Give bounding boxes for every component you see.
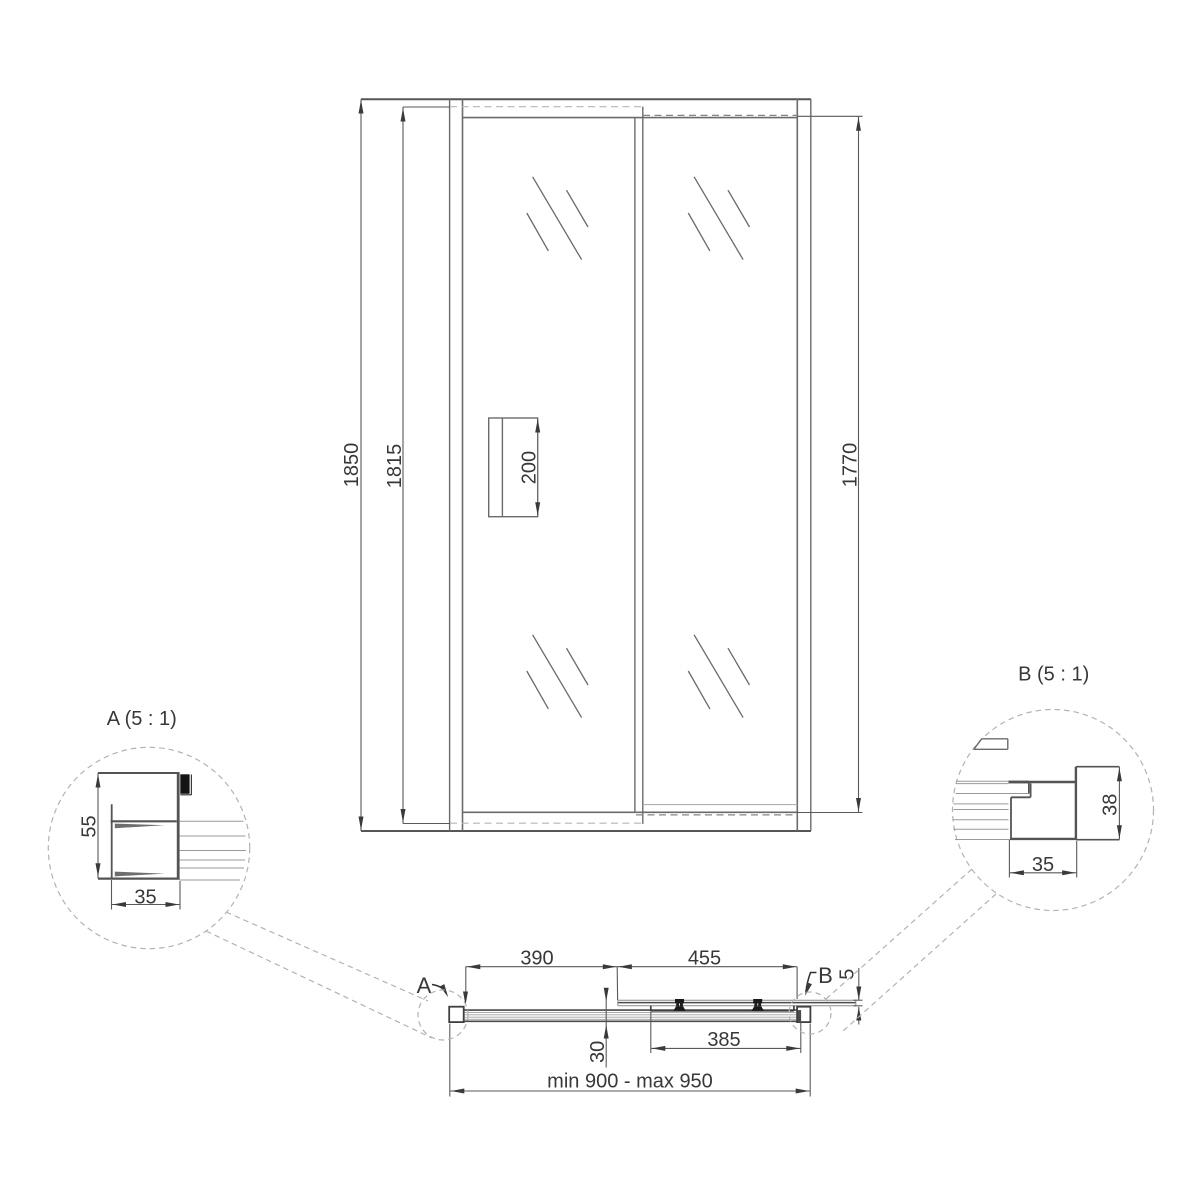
svg-text:B: B [818,963,833,988]
svg-text:1770: 1770 [839,443,861,488]
svg-text:385: 385 [707,1029,740,1051]
svg-text:30: 30 [587,1041,609,1063]
svg-text:35: 35 [134,887,156,909]
svg-text:A: A [417,973,432,998]
svg-text:min 900 - max 950: min 900 - max 950 [547,1070,713,1092]
svg-text:38: 38 [1100,794,1122,816]
svg-text:35: 35 [1032,854,1054,876]
svg-text:200: 200 [519,451,541,484]
svg-text:5: 5 [837,969,859,980]
svg-text:B (5 : 1): B (5 : 1) [1018,664,1089,686]
svg-text:455: 455 [688,948,721,970]
svg-text:A (5 : 1): A (5 : 1) [107,708,177,730]
svg-text:390: 390 [520,948,553,970]
svg-text:1815: 1815 [384,444,406,489]
svg-text:1850: 1850 [341,443,363,488]
svg-text:55: 55 [78,815,100,837]
